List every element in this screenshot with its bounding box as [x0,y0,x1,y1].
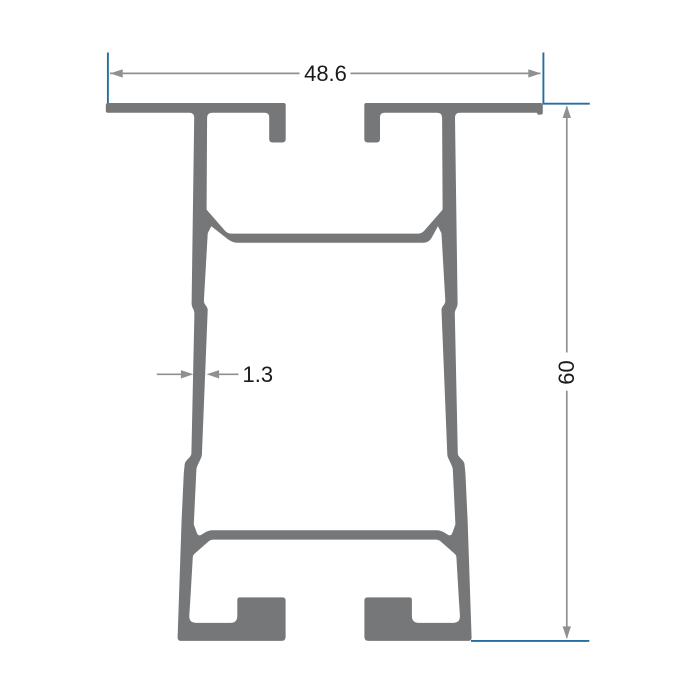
svg-text:48.6: 48.6 [304,61,347,86]
svg-text:1.3: 1.3 [243,362,274,387]
svg-text:60: 60 [554,360,579,384]
